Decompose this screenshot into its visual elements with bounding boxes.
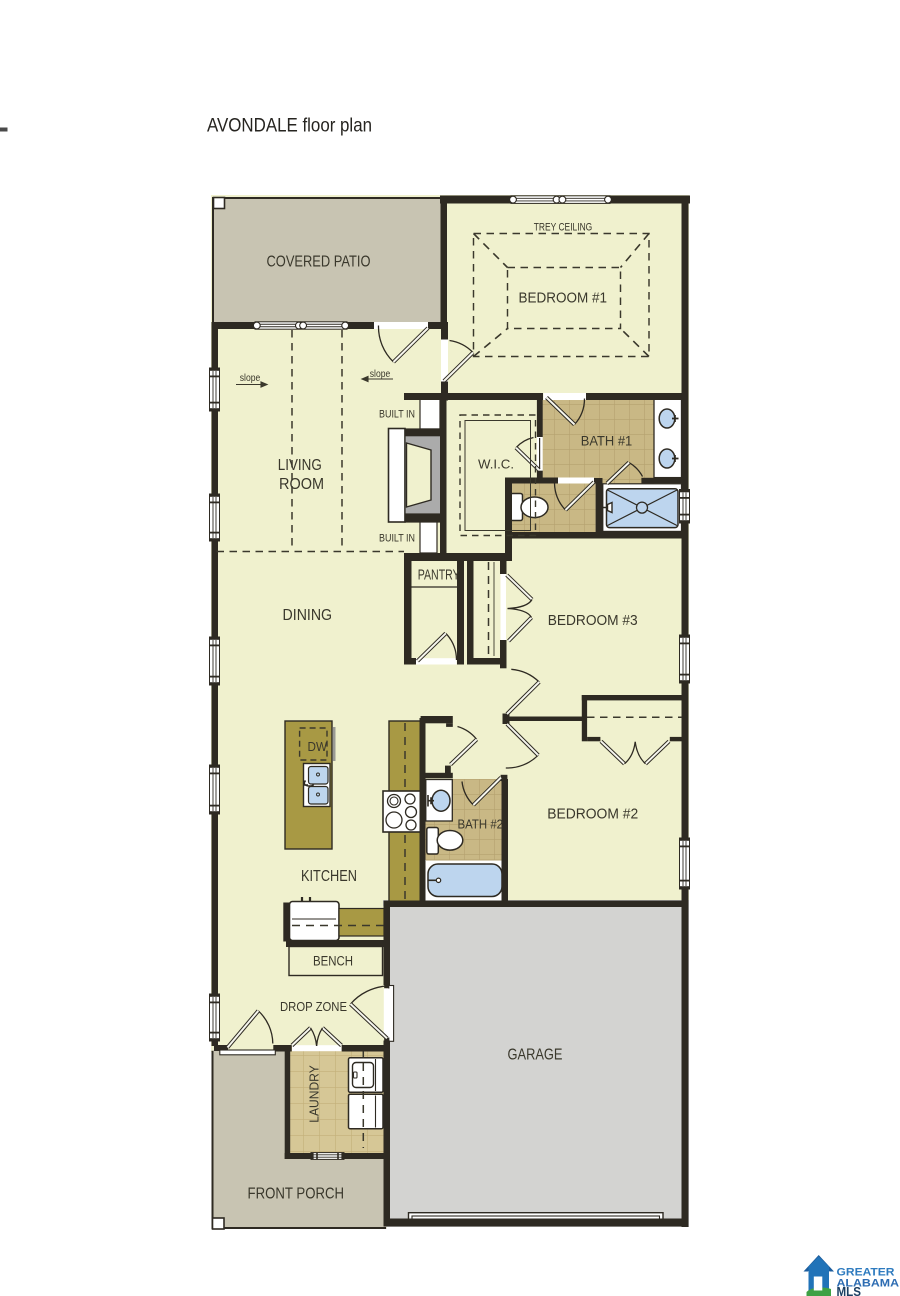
- svg-text:KITCHEN: KITCHEN: [301, 868, 357, 885]
- svg-text:TREY CEILING: TREY CEILING: [534, 222, 593, 234]
- svg-text:BENCH: BENCH: [313, 954, 353, 969]
- svg-text:MLS: MLS: [837, 1285, 862, 1296]
- svg-text:LAUNDRY: LAUNDRY: [308, 1065, 322, 1123]
- svg-text:DROP ZONE: DROP ZONE: [280, 999, 347, 1014]
- svg-text:DINING: DINING: [283, 607, 333, 624]
- svg-text:W.I.C.: W.I.C.: [478, 457, 514, 472]
- svg-text:BUILT IN: BUILT IN: [379, 409, 415, 421]
- svg-text:BEDROOM #3: BEDROOM #3: [548, 613, 638, 629]
- svg-text:BEDROOM #1: BEDROOM #1: [519, 291, 608, 307]
- svg-text:COVERED PATIO: COVERED PATIO: [267, 254, 371, 271]
- svg-text:GARAGE: GARAGE: [508, 1047, 563, 1064]
- svg-text:BUILT IN: BUILT IN: [379, 533, 415, 545]
- svg-text:BEDROOM #2: BEDROOM #2: [547, 807, 638, 823]
- svg-text:AVONDALE floor plan: AVONDALE floor plan: [207, 115, 372, 137]
- svg-text:DW: DW: [308, 739, 328, 754]
- svg-text:LIVING: LIVING: [278, 457, 322, 474]
- svg-text:ROOM: ROOM: [279, 476, 324, 493]
- svg-text:FRONT PORCH: FRONT PORCH: [248, 1186, 345, 1203]
- svg-text:BATH #2: BATH #2: [458, 818, 504, 832]
- svg-text:slope: slope: [370, 369, 391, 380]
- svg-text:PANTRY: PANTRY: [418, 568, 460, 584]
- svg-text:slope: slope: [240, 373, 261, 384]
- svg-text:BATH #1: BATH #1: [581, 434, 633, 449]
